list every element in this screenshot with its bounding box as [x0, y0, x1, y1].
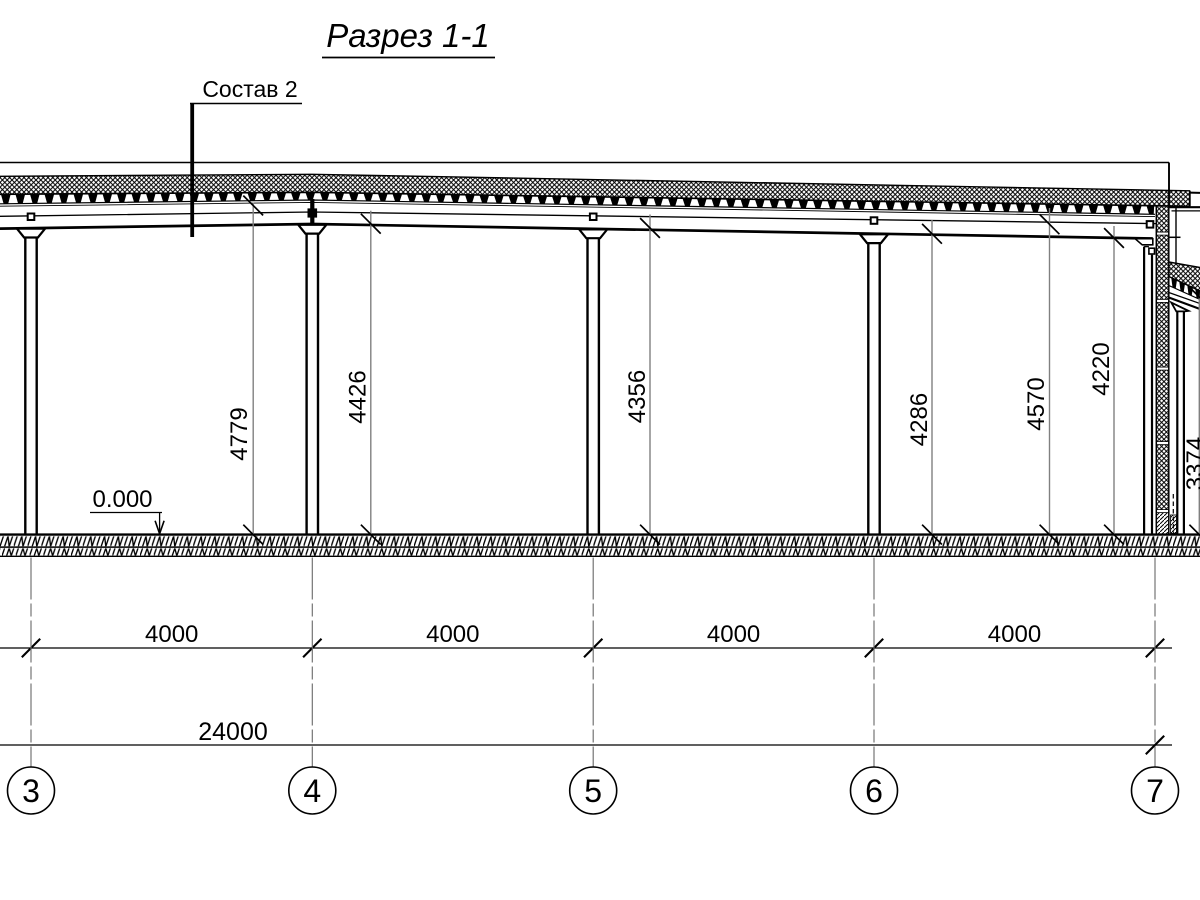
- svg-text:5: 5: [584, 773, 602, 809]
- svg-text:3374: 3374: [1182, 437, 1200, 490]
- svg-text:4779: 4779: [226, 407, 253, 460]
- svg-text:0.000: 0.000: [92, 486, 152, 513]
- svg-text:3: 3: [22, 773, 40, 809]
- svg-text:4: 4: [303, 773, 321, 809]
- svg-text:4356: 4356: [624, 370, 651, 423]
- svg-text:4286: 4286: [906, 393, 933, 446]
- svg-text:4000: 4000: [426, 621, 479, 648]
- svg-text:7: 7: [1146, 773, 1164, 809]
- svg-text:4000: 4000: [707, 621, 760, 648]
- svg-text:24000: 24000: [198, 718, 268, 746]
- svg-text:4426: 4426: [344, 370, 371, 423]
- svg-text:4000: 4000: [145, 621, 198, 648]
- svg-text:Разрез 1-1: Разрез 1-1: [326, 17, 490, 54]
- svg-text:4000: 4000: [988, 621, 1041, 648]
- svg-text:4220: 4220: [1088, 342, 1115, 395]
- svg-text:6: 6: [865, 773, 883, 809]
- svg-text:4570: 4570: [1023, 377, 1050, 430]
- svg-text:Состав 2: Состав 2: [202, 76, 297, 102]
